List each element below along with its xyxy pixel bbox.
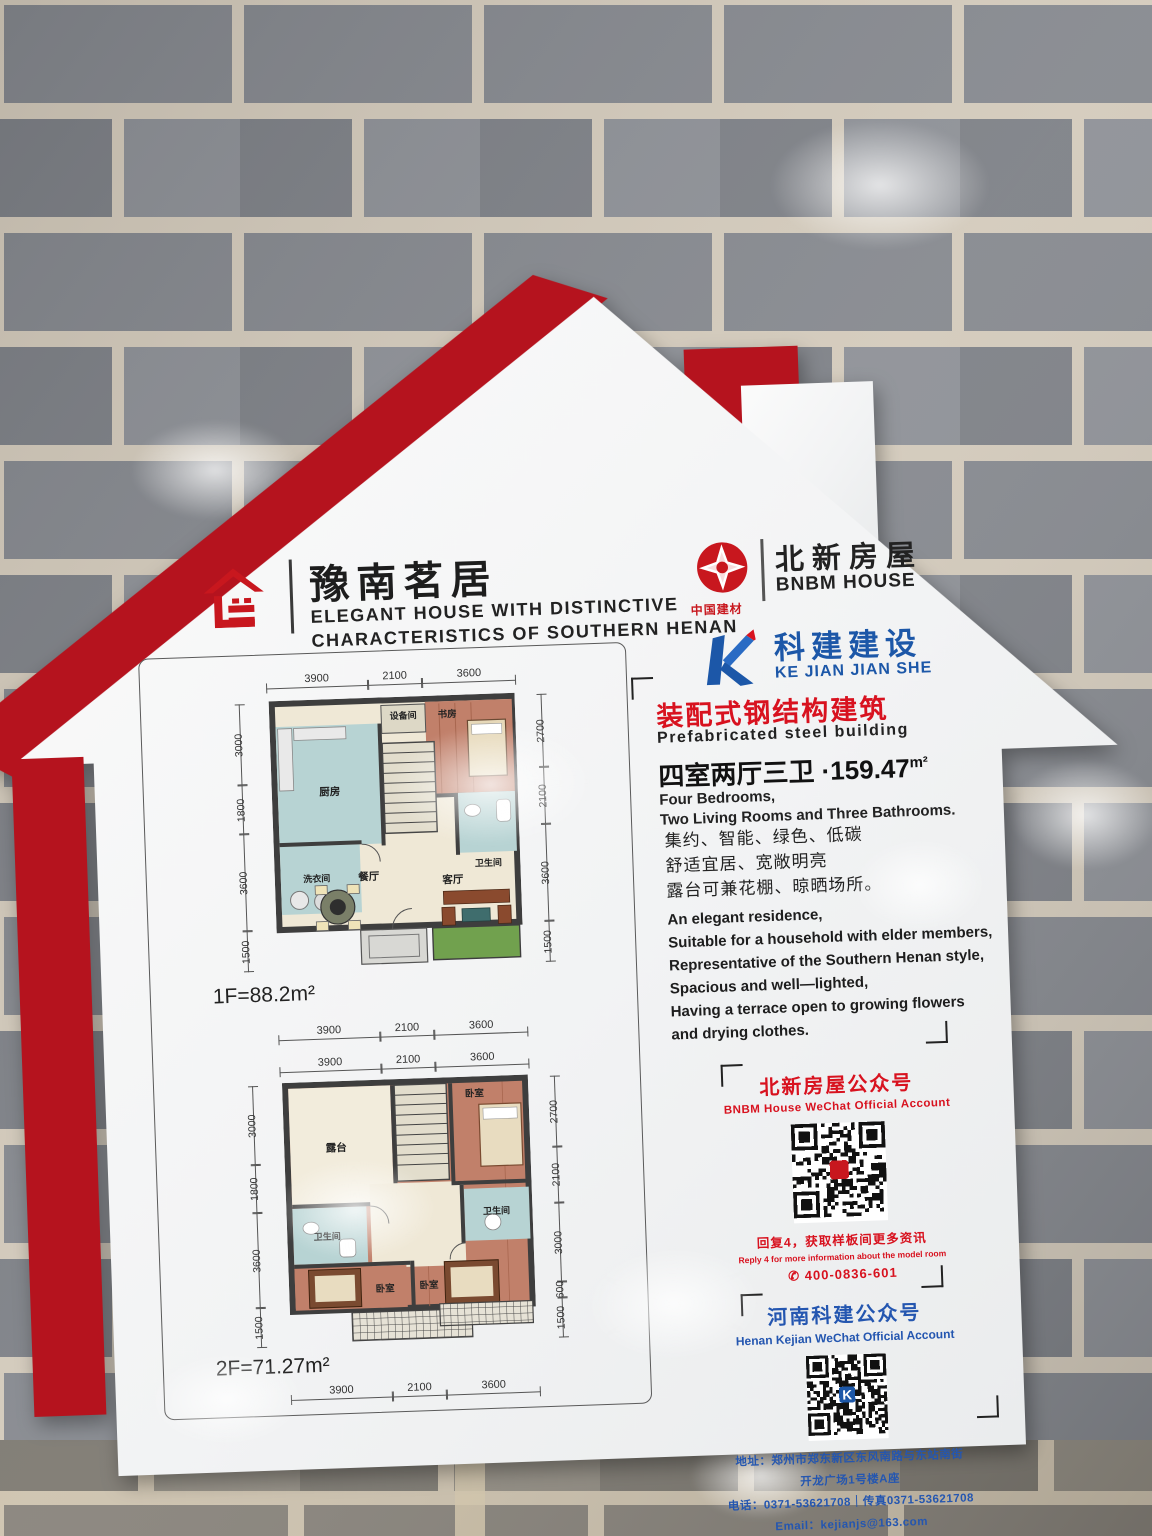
bnbm-name-en: BNBM HOUSE: [775, 570, 916, 597]
features-cn: 集约、智能、绿色、低碳 舒适宜居、宽敞明亮 露台可兼花棚、晾晒场所。: [664, 821, 882, 903]
header-divider: [289, 559, 295, 633]
room-label: 卫生间: [483, 1204, 510, 1216]
room-label: 书房: [437, 708, 456, 721]
dim-label: 3000: [552, 1230, 565, 1254]
dim-label: 2700: [534, 719, 547, 743]
dim-label: 3600: [470, 1050, 495, 1066]
f1-right-dims: 2700 2100 3600 1500: [541, 693, 566, 961]
house-sign: 豫南茗居 ELEGANT HOUSE WITH DISTINCTIVE CHAR…: [0, 273, 1144, 1486]
dim-label: 2100: [382, 669, 407, 685]
dim-label: 3900: [318, 1055, 343, 1071]
corner-mark: [976, 1395, 999, 1418]
house-logo-icon: [201, 564, 267, 628]
f1-bottom-dims: 3900 2100 3600: [278, 1017, 528, 1042]
spec-cn: 四室两厅三卫 ·159.47: [658, 753, 910, 792]
f1-top-dims: 3900 2100 3600: [266, 665, 516, 690]
brand-divider: [760, 539, 765, 601]
dim-label: 3600: [469, 1018, 494, 1034]
f2-left-dims: 3000 1800 3600 1500: [252, 1086, 277, 1348]
dim-label: 3600: [539, 861, 552, 885]
dim-label: 3600: [456, 666, 481, 682]
spec-line: 四室两厅三卫 ·159.47m²: [658, 747, 929, 793]
dim-label: 3600: [481, 1378, 506, 1394]
room-label: 露台: [326, 1141, 347, 1155]
floorplan-1f: 厨房 设备间 书房 洗衣间 卫生间 餐厅 客厅: [269, 693, 524, 969]
corner-mark: [921, 1265, 944, 1288]
svg-text:K: K: [842, 1387, 853, 1402]
dim-label: 2100: [537, 783, 550, 807]
room-label: 洗衣间: [303, 872, 330, 884]
room-label: 卧室: [419, 1279, 439, 1292]
dim-label: 1500: [240, 940, 253, 964]
floorplan-box: 3900 2100 3600: [138, 642, 652, 1421]
dim-label: 3600: [251, 1249, 264, 1273]
sign-content: 豫南茗居 ELEGANT HOUSE WITH DISTINCTIVE CHAR…: [0, 273, 1144, 1486]
kejian-logo-icon: [699, 625, 757, 689]
cnbm-logo-icon: [692, 537, 752, 597]
dim-label: 3000: [246, 1114, 259, 1138]
spec-unit: m²: [909, 754, 928, 772]
f2-area-label: 2F=71.27m²: [215, 1354, 330, 1382]
room-label: 卧室: [375, 1282, 395, 1295]
dim-label: 3900: [316, 1023, 341, 1039]
kejian-qr-code: K: [806, 1353, 889, 1441]
f2-top-dims: 3900 2100 3600: [279, 1049, 529, 1074]
spec-en-line1: Four Bedrooms,: [659, 788, 775, 809]
dim-label: 1500: [253, 1316, 266, 1340]
room-label: 餐厅: [357, 870, 380, 884]
dim-label: 3600: [238, 871, 251, 895]
bnbm-wechat-block: 北新房屋公众号 BNBM House WeChat Official Accou…: [671, 1063, 1008, 1288]
f1-left-dims: 3000 1800 3600 1500: [239, 704, 264, 972]
dim-label: 2100: [396, 1052, 421, 1068]
corner-mark: [925, 1021, 948, 1044]
dim-label: 3900: [304, 671, 329, 687]
bnbm-qr-code: [791, 1121, 888, 1223]
dim-label: 1800: [248, 1177, 261, 1201]
kejian-wechat-block: 河南科建公众号 Henan Kejian WeChat Official Acc…: [679, 1293, 1017, 1536]
photo-scene: 豫南茗居 ELEGANT HOUSE WITH DISTINCTIVE CHAR…: [0, 0, 1152, 1536]
room-label: 卫生间: [475, 856, 502, 868]
phone-icon: ✆: [788, 1268, 800, 1283]
room-label: 客厅: [441, 873, 464, 887]
floorplan-2f: 露台 卧室 卫生间 卫生间 卧室 卧室: [282, 1075, 537, 1349]
f1-area-label: 1F=88.2m²: [212, 982, 315, 1010]
room-label: 卫生间: [314, 1230, 341, 1242]
phone-number: 400-0836-601: [804, 1265, 897, 1283]
f2-right-dims: 2700 2100 3000 600 1500: [554, 1075, 579, 1337]
dim-label: 1800: [235, 798, 248, 822]
cnbm-label: 中国建材: [690, 600, 743, 619]
dim-label: 600: [554, 1281, 567, 1299]
f2-bottom-dims: 3900 2100 3600: [290, 1376, 540, 1401]
dim-label: 1500: [542, 930, 555, 954]
room-label: 厨房: [319, 785, 340, 799]
dim-label: 2100: [394, 1020, 419, 1036]
room-label: 卧室: [465, 1087, 485, 1100]
dim-label: 2700: [548, 1099, 561, 1123]
dim-label: 1500: [555, 1306, 568, 1330]
dim-label: 3900: [329, 1383, 354, 1399]
corner-mark: [631, 677, 654, 700]
room-label: 设备间: [389, 709, 416, 721]
dim-label: 2100: [407, 1380, 432, 1396]
dim-label: 3000: [233, 733, 246, 757]
dim-label: 2100: [550, 1163, 563, 1187]
